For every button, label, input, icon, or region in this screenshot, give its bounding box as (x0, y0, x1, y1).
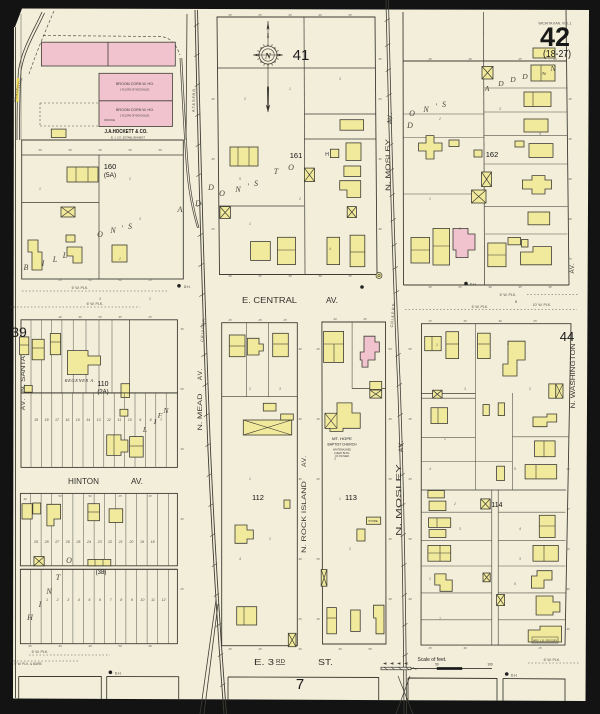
svg-text:Scale of feet.: Scale of feet. (418, 657, 447, 663)
svg-text:50: 50 (388, 347, 392, 351)
svg-text:30: 30 (488, 285, 492, 289)
svg-text:L: L (62, 251, 68, 260)
svg-text:N: N (422, 105, 429, 114)
svg-text:112: 112 (252, 493, 264, 502)
svg-text:50: 50 (388, 477, 392, 481)
svg-text:': ' (121, 224, 123, 233)
svg-text:I: I (38, 600, 42, 609)
svg-text:BAPTIST CHURCH: BAPTIST CHURCH (328, 443, 357, 447)
svg-text:50: 50 (68, 148, 72, 152)
svg-text:D.H.: D.H. (511, 674, 517, 678)
svg-text:6: 6 (514, 582, 516, 586)
svg-text:40: 40 (316, 617, 320, 621)
svg-text:45: 45 (566, 507, 570, 511)
svg-text:40: 40 (318, 13, 322, 17)
svg-text:6' W. PLK. & BARB: 6' W. PLK. & BARB (14, 662, 41, 666)
svg-text:45: 45 (288, 13, 292, 17)
svg-text:25: 25 (117, 494, 122, 498)
svg-text:45: 45 (378, 57, 382, 61)
svg-text:100: 100 (487, 663, 493, 667)
svg-text:A.T.& S.F.R.R.: A.T.& S.F.R.R. (192, 88, 197, 112)
svg-text:35: 35 (148, 494, 152, 498)
svg-text:3: 3 (499, 107, 501, 111)
svg-text:5: 5 (239, 177, 241, 181)
svg-text:45: 45 (316, 477, 320, 481)
svg-text:2: 2 (248, 387, 251, 391)
svg-text:45: 45 (378, 157, 382, 161)
svg-text:10' W. PLK.: 10' W. PLK. (533, 303, 552, 307)
svg-text:45: 45 (258, 318, 262, 322)
svg-text:6' W. PLK.: 6' W. PLK. (544, 658, 561, 662)
svg-text:25: 25 (532, 319, 537, 323)
svg-text:45: 45 (388, 417, 392, 421)
svg-text:25: 25 (257, 647, 262, 651)
svg-text:40: 40 (388, 537, 392, 541)
svg-text:MT. HOPE: MT. HOPE (332, 437, 353, 441)
svg-text:7: 7 (296, 676, 304, 693)
svg-text:20: 20 (128, 540, 133, 544)
svg-text:25: 25 (427, 646, 432, 650)
svg-text:40: 40 (566, 627, 570, 631)
svg-text:2: 2 (148, 297, 151, 301)
svg-text:H: H (325, 152, 329, 158)
svg-text:6' W. PLK.: 6' W. PLK. (72, 286, 89, 290)
svg-text:2: 2 (453, 502, 456, 506)
svg-text:AV.: AV. (326, 296, 338, 305)
svg-text:HINTON: HINTON (68, 477, 99, 486)
svg-text:4: 4 (539, 132, 541, 136)
svg-text:15: 15 (76, 418, 80, 422)
svg-text:BROOM CORN W. HO.: BROOM CORN W. HO. (116, 108, 154, 112)
svg-text:A: A (177, 205, 183, 214)
svg-text:1: 1 (429, 197, 431, 201)
svg-text:WICHITA KAN. VOL.1: WICHITA KAN. VOL.1 (538, 22, 571, 26)
svg-text:45: 45 (348, 13, 352, 17)
svg-text:T: T (274, 167, 279, 176)
svg-text:25: 25 (179, 587, 184, 591)
svg-text:A: A (484, 84, 490, 93)
svg-text:14: 14 (86, 418, 90, 422)
svg-text:4: 4 (239, 557, 241, 561)
svg-text:3: 3 (139, 217, 141, 221)
svg-text:50: 50 (98, 148, 102, 152)
svg-text:MRS. L.B. GRIGSBY: MRS. L.B. GRIGSBY (533, 639, 558, 643)
svg-text:1: 1 (39, 187, 41, 191)
svg-text:28: 28 (44, 540, 49, 544)
svg-text:9: 9 (139, 418, 141, 422)
svg-text:3: 3 (339, 77, 341, 81)
svg-text:D.H.: D.H. (184, 285, 190, 289)
svg-text:(18-27): (18-27) (543, 49, 571, 60)
svg-text:35: 35 (298, 477, 302, 481)
svg-text:18: 18 (151, 540, 155, 544)
svg-text:50: 50 (408, 537, 412, 541)
svg-text:N: N (234, 185, 241, 194)
svg-text:50: 50 (98, 315, 102, 319)
svg-text:J.A.HOCKETT & CO.: J.A.HOCKETT & CO. (105, 129, 148, 135)
svg-text:30: 30 (78, 315, 82, 319)
svg-text:4: 4 (78, 598, 80, 602)
svg-text:11: 11 (118, 418, 122, 422)
svg-text:40: 40 (333, 317, 337, 321)
svg-text:STORE: STORE (368, 519, 378, 523)
svg-text:45: 45 (288, 274, 292, 278)
svg-text:AV.: AV. (301, 455, 308, 467)
svg-text:16: 16 (65, 418, 69, 422)
svg-text:25: 25 (567, 257, 572, 261)
svg-text:19: 19 (140, 540, 144, 544)
svg-text:35: 35 (211, 157, 215, 161)
svg-text:3: 3 (459, 527, 461, 531)
svg-text:': ' (247, 182, 249, 191)
svg-text:30: 30 (23, 497, 27, 501)
svg-text:D: D (207, 183, 214, 192)
svg-text:2: 2 (56, 598, 59, 602)
svg-text:REGENER A.: REGENER A. (64, 378, 95, 383)
svg-text:N: N (542, 71, 545, 76)
svg-text:2: 2 (268, 537, 271, 541)
svg-text:2: 2 (128, 177, 131, 181)
svg-text:35: 35 (118, 315, 122, 319)
svg-text:25: 25 (517, 57, 522, 61)
svg-text:AV.: AV. (197, 368, 204, 380)
svg-text:AV.: AV. (570, 262, 576, 273)
svg-text:6' W. PLK.: 6' W. PLK. (32, 650, 49, 654)
svg-text:9: 9 (131, 598, 133, 602)
svg-text:50: 50 (180, 387, 184, 391)
svg-text:I: I (153, 417, 157, 426)
svg-text:11: 11 (151, 598, 155, 602)
svg-text:N. ROCK ISLAND: N. ROCK ISLAND (301, 481, 308, 553)
svg-text:N. MEAD: N. MEAD (197, 393, 204, 430)
svg-text:N: N (109, 226, 116, 235)
svg-text:T: T (56, 573, 61, 582)
svg-text:30: 30 (148, 644, 152, 648)
svg-text:4: 4 (519, 527, 521, 531)
svg-text:12: 12 (107, 418, 111, 422)
svg-text:42: 42 (540, 22, 570, 52)
svg-text:30: 30 (498, 319, 502, 323)
svg-text:6' W. PLK.: 6' W. PLK. (500, 293, 517, 297)
svg-text:41: 41 (293, 47, 310, 64)
svg-text:I: I (41, 259, 45, 268)
svg-text:30: 30 (568, 177, 572, 181)
svg-text:5: 5 (88, 598, 90, 602)
svg-text:30: 30 (468, 57, 472, 61)
svg-text:1: 1 (249, 477, 251, 481)
svg-text:45: 45 (316, 347, 320, 351)
svg-text:35: 35 (408, 417, 412, 421)
svg-text:30: 30 (566, 587, 570, 591)
svg-text:1: 1 (46, 598, 48, 602)
svg-text:B: B (24, 263, 29, 272)
svg-text:25: 25 (377, 97, 382, 101)
svg-text:L: L (52, 255, 58, 264)
svg-text:4: 4 (429, 467, 431, 471)
svg-text:25: 25 (537, 646, 542, 650)
svg-text:50: 50 (408, 347, 412, 351)
svg-text:5: 5 (507, 342, 509, 346)
svg-text:8: 8 (120, 598, 122, 602)
svg-text:162: 162 (486, 150, 499, 159)
svg-text:OF RATHER: OF RATHER (335, 454, 349, 458)
svg-text:50: 50 (118, 278, 122, 282)
svg-text:E. 3: E. 3 (254, 658, 275, 667)
svg-text:45: 45 (338, 647, 342, 651)
svg-text:25: 25 (457, 285, 462, 289)
svg-text:35: 35 (518, 285, 522, 289)
svg-text:': ' (435, 102, 437, 111)
svg-text:2: 2 (118, 257, 121, 261)
svg-text:50: 50 (566, 547, 570, 551)
svg-text:1: 1 (249, 222, 251, 226)
svg-text:160: 160 (104, 162, 117, 171)
svg-text:2: 2 (458, 227, 461, 231)
svg-text:35: 35 (568, 137, 572, 141)
svg-text:50: 50 (435, 663, 439, 667)
svg-text:35: 35 (180, 327, 184, 331)
svg-text:AV.: AV. (398, 440, 405, 452)
svg-text:19: 19 (34, 418, 38, 422)
svg-text:40: 40 (88, 644, 92, 648)
svg-text:45: 45 (228, 647, 232, 651)
svg-text:O: O (288, 163, 294, 172)
svg-text:45: 45 (28, 644, 32, 648)
svg-text:45: 45 (408, 477, 412, 481)
svg-text:F: F (157, 411, 163, 420)
svg-text:30: 30 (58, 644, 62, 648)
svg-text:8: 8 (150, 418, 152, 422)
svg-text:E. CENTRAL: E. CENTRAL (242, 296, 298, 305)
svg-text:50: 50 (38, 148, 42, 152)
svg-text:4: 4 (329, 247, 331, 251)
svg-text:50: 50 (368, 647, 372, 651)
svg-text:45: 45 (553, 57, 557, 61)
svg-text:30: 30 (298, 417, 302, 421)
svg-text:D: D (509, 75, 516, 84)
svg-text:30: 30 (298, 347, 302, 351)
svg-text:114: 114 (491, 502, 502, 509)
svg-text:23: 23 (97, 540, 102, 544)
svg-text:25: 25 (347, 274, 352, 278)
svg-text:161: 161 (290, 151, 303, 160)
svg-text:25: 25 (147, 315, 152, 319)
svg-text:3: 3 (99, 297, 101, 301)
svg-text:40: 40 (316, 417, 320, 421)
svg-text:O: O (219, 189, 225, 198)
svg-text:7: 7 (439, 617, 441, 621)
svg-text:40: 40 (568, 217, 572, 221)
svg-text:40: 40 (58, 315, 62, 319)
svg-text:22: 22 (107, 540, 112, 544)
svg-text:35: 35 (428, 57, 432, 61)
svg-text:RD: RD (276, 659, 285, 665)
svg-text:25: 25 (427, 319, 432, 323)
svg-text:2 FLOORS OF WOOD BLDG.: 2 FLOORS OF WOOD BLDG. (120, 115, 150, 118)
svg-text:3: 3 (519, 557, 521, 561)
svg-text:45: 45 (428, 285, 432, 289)
svg-text:1: 1 (289, 87, 291, 91)
svg-text:30: 30 (228, 274, 232, 278)
svg-text:3: 3 (279, 387, 281, 391)
svg-text:2: 2 (428, 577, 431, 581)
svg-text:25: 25 (147, 278, 152, 282)
svg-text:110: 110 (97, 381, 108, 388)
svg-text:2: 2 (348, 547, 351, 551)
svg-text:D: D (521, 72, 528, 81)
svg-text:N: N (162, 406, 169, 415)
svg-text:O: O (409, 109, 415, 118)
svg-text:12: 12 (162, 598, 166, 602)
svg-text:30: 30 (463, 646, 467, 650)
svg-text:N: N (549, 64, 556, 73)
svg-text:3: 3 (67, 598, 69, 602)
svg-text:(5A): (5A) (104, 172, 116, 179)
svg-text:D.H.: D.H. (115, 672, 121, 676)
svg-text:O: O (97, 230, 103, 239)
svg-text:50: 50 (118, 644, 122, 648)
svg-text:24: 24 (86, 540, 91, 544)
svg-text:1: 1 (436, 343, 438, 347)
svg-text:N: N (264, 51, 272, 61)
svg-text:25: 25 (297, 617, 302, 621)
svg-text:25: 25 (282, 318, 287, 322)
svg-text:2: 2 (438, 117, 441, 121)
svg-text:45: 45 (568, 97, 572, 101)
svg-text:B. J. CO. ESTABLISHMENT: B. J. CO. ESTABLISHMENT (111, 136, 145, 140)
svg-text:50: 50 (88, 278, 92, 282)
svg-text:25: 25 (565, 467, 570, 471)
svg-text:S: S (128, 222, 132, 231)
svg-text:50: 50 (58, 494, 62, 498)
svg-text:26: 26 (65, 540, 70, 544)
svg-text:BROOM CORN W. HO.: BROOM CORN W. HO. (116, 82, 154, 86)
svg-text:5: 5 (514, 467, 516, 471)
svg-text:AV.: AV. (387, 112, 394, 124)
svg-text:40: 40 (180, 447, 184, 451)
svg-text:113: 113 (345, 493, 357, 502)
svg-text:25: 25 (75, 540, 80, 544)
svg-text:AV.: AV. (131, 477, 143, 486)
svg-text:S: S (442, 100, 446, 109)
svg-text:S: S (254, 179, 258, 188)
svg-text:1: 1 (339, 497, 341, 501)
svg-text:D.H.: D.H. (470, 283, 476, 287)
svg-text:6' W. PLK.: 6' W. PLK. (472, 305, 489, 309)
svg-text:25: 25 (210, 227, 215, 231)
svg-text:50: 50 (316, 557, 320, 561)
svg-text:2: 2 (298, 197, 301, 201)
svg-text:N: N (45, 587, 52, 596)
svg-text:L: L (142, 425, 147, 434)
svg-text:6' W. PLK.: 6' W. PLK. (87, 302, 104, 306)
svg-text:O: O (66, 556, 72, 565)
svg-text:N. WASHINGTON: N. WASHINGTON (571, 344, 577, 409)
svg-text:50: 50 (88, 494, 92, 498)
svg-text:10: 10 (128, 418, 132, 422)
svg-text:3: 3 (464, 387, 466, 391)
svg-text:D: D (406, 121, 413, 130)
svg-text:29: 29 (33, 540, 38, 544)
svg-text:30: 30 (378, 227, 382, 231)
svg-text:2: 2 (528, 387, 531, 391)
svg-text:45: 45 (180, 517, 184, 521)
svg-text:2 FLOORS OF WOOD BLDG.: 2 FLOORS OF WOOD BLDG. (120, 89, 150, 92)
svg-text:10: 10 (140, 598, 144, 602)
svg-text:45: 45 (463, 319, 467, 323)
svg-text:50: 50 (128, 148, 132, 152)
svg-text:45: 45 (228, 13, 232, 17)
svg-text:25: 25 (227, 318, 232, 322)
svg-text:18: 18 (45, 418, 49, 422)
svg-text:13: 13 (97, 418, 101, 422)
svg-text:35: 35 (548, 285, 552, 289)
svg-text:25: 25 (257, 274, 262, 278)
svg-text:30: 30 (298, 557, 302, 561)
svg-text:40: 40 (388, 597, 392, 601)
svg-text:45: 45 (298, 647, 302, 651)
svg-text:OFFICE: OFFICE (104, 118, 115, 122)
svg-text:1: 1 (444, 437, 446, 441)
svg-text:25: 25 (257, 13, 262, 17)
svg-text:D: D (497, 79, 504, 88)
svg-text:25: 25 (57, 278, 62, 282)
svg-text:50: 50 (318, 274, 322, 278)
svg-text:2: 2 (243, 97, 246, 101)
svg-text:44: 44 (560, 329, 574, 344)
svg-text:50: 50 (158, 148, 162, 152)
svg-text:45: 45 (211, 97, 215, 101)
svg-text:3: 3 (334, 457, 336, 461)
svg-text:21: 21 (118, 540, 123, 544)
svg-text:45: 45 (363, 317, 367, 321)
svg-text:40: 40 (408, 597, 412, 601)
svg-text:6: 6 (99, 598, 101, 602)
svg-text:ST.: ST. (318, 658, 333, 667)
